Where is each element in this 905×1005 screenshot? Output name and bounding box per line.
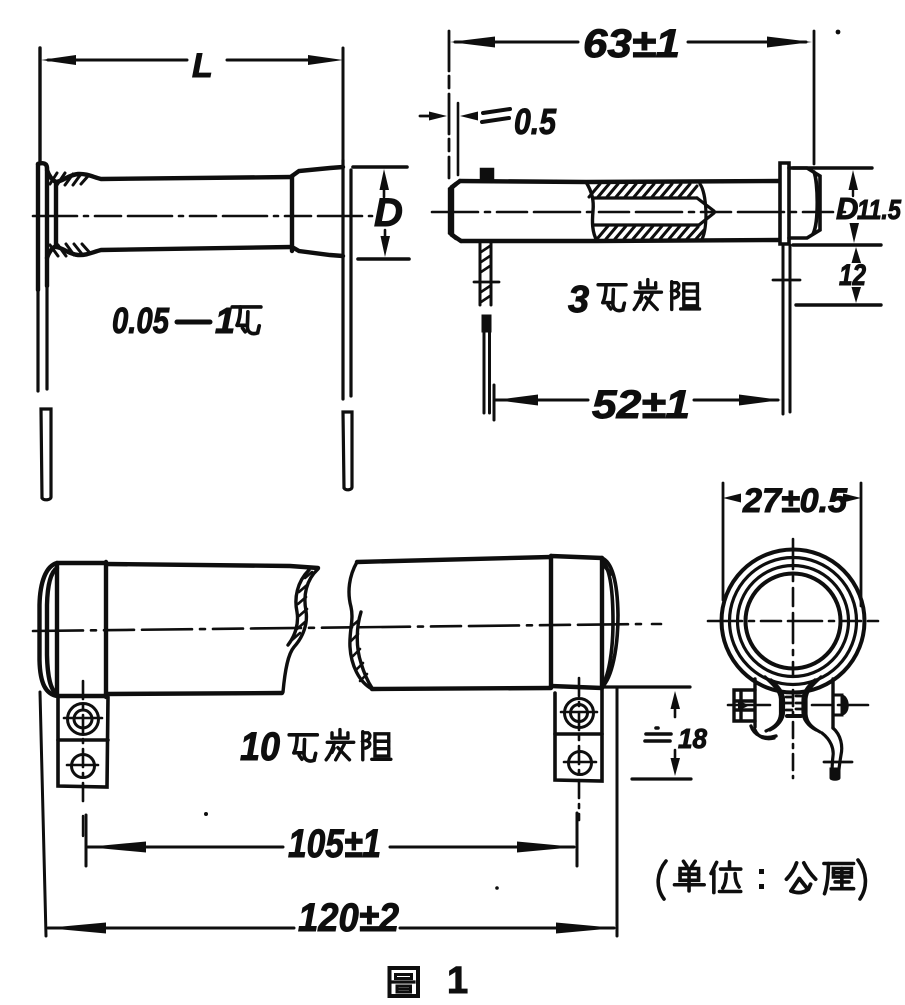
svg-text:18: 18: [678, 723, 707, 754]
svg-text:10: 10: [240, 725, 280, 769]
svg-text:0.05: 0.05: [112, 300, 170, 341]
svg-text:L: L: [192, 47, 213, 85]
svg-text:D: D: [374, 191, 403, 235]
svg-text:63±1: 63±1: [583, 22, 680, 66]
svg-text:27±0.5: 27±0.5: [742, 482, 848, 520]
svg-text:0.5: 0.5: [514, 101, 557, 142]
svg-text:1: 1: [447, 960, 468, 1002]
svg-text:120±2: 120±2: [298, 896, 399, 940]
svg-text:11.5: 11.5: [857, 194, 901, 225]
svg-text:3: 3: [568, 279, 589, 321]
svg-text:105±1: 105±1: [288, 822, 381, 866]
svg-text:52±1: 52±1: [592, 383, 690, 427]
svg-text:12: 12: [839, 259, 866, 292]
svg-text:D: D: [836, 191, 858, 226]
